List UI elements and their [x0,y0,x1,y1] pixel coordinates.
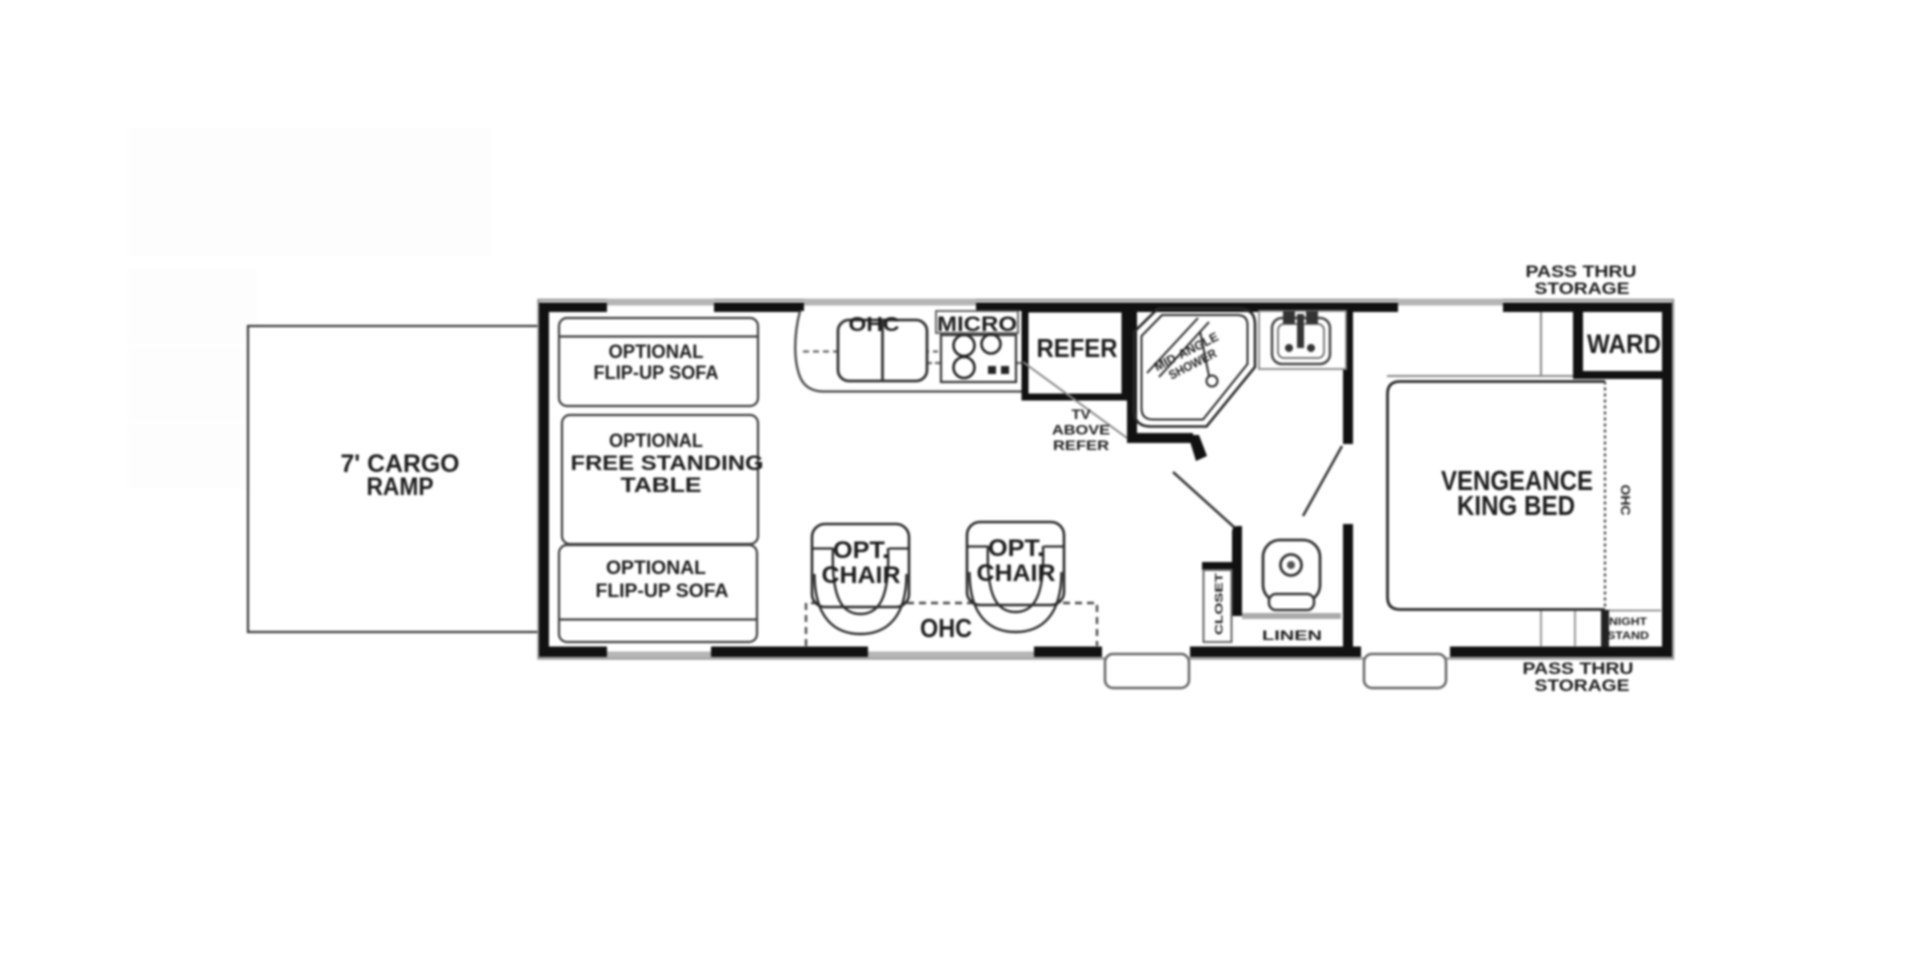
svg-text:OHC: OHC [920,613,972,643]
svg-text:OPT.: OPT. [988,535,1044,562]
svg-text:OHC: OHC [849,314,900,336]
svg-text:TV: TV [1072,406,1092,422]
svg-text:OHC: OHC [1618,485,1633,517]
svg-text:OPT.: OPT. [833,537,889,564]
svg-text:FLIP-UP SOFA: FLIP-UP SOFA [594,363,719,384]
svg-text:OPTIONAL: OPTIONAL [609,431,703,452]
svg-text:MICRO: MICRO [937,313,1017,336]
svg-text:TABLE: TABLE [621,474,702,497]
svg-text:ABOVE: ABOVE [1052,422,1110,438]
svg-text:CHAIR: CHAIR [822,562,901,589]
svg-text:FREE STANDING: FREE STANDING [571,452,764,475]
svg-text:FLIP-UP SOFA: FLIP-UP SOFA [596,581,729,602]
svg-text:CHAIR: CHAIR [977,560,1056,587]
svg-text:STORAGE: STORAGE [1535,676,1630,695]
svg-text:OPTIONAL: OPTIONAL [606,558,706,579]
svg-text:REFER: REFER [1053,437,1109,453]
svg-text:KING BED: KING BED [1457,490,1575,521]
svg-text:STAND: STAND [1607,630,1649,642]
svg-text:NIGHT: NIGHT [1609,616,1647,628]
svg-text:RAMP: RAMP [367,473,434,501]
svg-text:STORAGE: STORAGE [1535,279,1630,298]
svg-text:LINEN: LINEN [1262,627,1322,643]
svg-text:REFER: REFER [1037,333,1118,363]
svg-text:OPTIONAL: OPTIONAL [609,342,704,363]
svg-text:WARD: WARD [1587,329,1661,359]
svg-text:CLOSET: CLOSET [1214,573,1226,635]
